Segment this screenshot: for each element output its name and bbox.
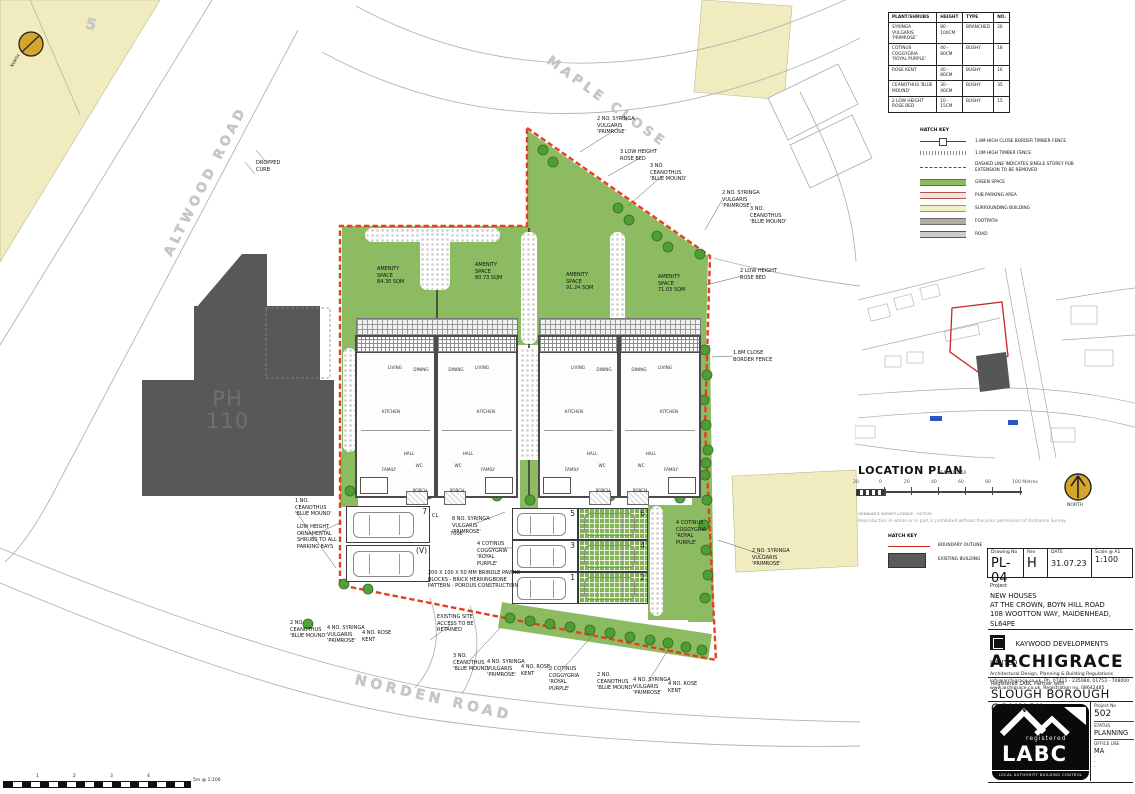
porch bbox=[627, 491, 649, 505]
tree-icon bbox=[585, 625, 595, 635]
office-use-value: MA bbox=[1094, 747, 1134, 755]
plan-annotation: 4 NO. ROSE KENT bbox=[668, 681, 697, 694]
car-icon bbox=[517, 545, 565, 568]
shrub-strip bbox=[650, 506, 663, 616]
plan-annotation: 1.8M CLOSE BORDER FENCE bbox=[733, 350, 772, 363]
scale-tick: 4 bbox=[147, 774, 150, 779]
porch bbox=[444, 491, 466, 505]
plant-col-header: TYPE bbox=[963, 13, 994, 23]
tree-icon bbox=[703, 570, 713, 580]
surrounding-building bbox=[732, 470, 858, 572]
hatch-sample-icon bbox=[920, 151, 966, 155]
plant-schedule-table: PLANT/SHRUBSHEIGHTTYPENO. SYRINGA VULGAR… bbox=[888, 12, 1010, 113]
plan-annotation: 3 NO. CEANOTHUS 'BLUE MOUND' bbox=[750, 206, 787, 226]
parking-bay-number: (V) bbox=[416, 546, 427, 555]
room-label: FAMILY bbox=[664, 467, 678, 472]
room-label: DINING bbox=[413, 367, 428, 372]
car-icon bbox=[353, 512, 414, 539]
tree-icon bbox=[702, 495, 712, 505]
tree-icon bbox=[645, 635, 655, 645]
room-label: HALL bbox=[463, 451, 474, 456]
hatch-key-label: 1.8M HIGH CLOSE BORDER TIMBER FENCE bbox=[975, 139, 1066, 145]
room-label: FAMILY bbox=[565, 467, 579, 472]
archigrace-logo-icon bbox=[990, 635, 1005, 650]
date: 31.07.23 bbox=[1051, 559, 1088, 568]
tree-icon bbox=[703, 445, 713, 455]
car-icon bbox=[353, 551, 414, 578]
house-unit: LIVINGDININGKITCHENHALLWCFAMILYPORCH bbox=[538, 335, 620, 498]
plan-annotation: 4 NO. SYRINGA VULGARIS 'PRIMROSE' bbox=[633, 677, 671, 697]
tree-icon bbox=[538, 145, 548, 155]
hatch-key-item: SURROUNDING BUILDING bbox=[920, 205, 1135, 212]
car-icon bbox=[517, 513, 565, 536]
tree-icon bbox=[701, 458, 711, 468]
room-label: DINING bbox=[596, 367, 611, 372]
plan-annotation: 2 NO. CEANOTHUS 'BLUE MOUND' bbox=[597, 672, 634, 692]
tree-icon bbox=[605, 628, 615, 638]
map-existing-building bbox=[976, 352, 1010, 392]
ordnance-note: Reproduction in whole or in part is proh… bbox=[858, 519, 1067, 524]
plan-annotation: 2 NO. SYRINGA VULGARIS 'PRIMROSE' bbox=[752, 548, 790, 568]
plan-annotation: AMENITY SPACE 80.73 SQM bbox=[475, 262, 502, 282]
internal-wall bbox=[544, 430, 613, 431]
scale-tick: 3 bbox=[110, 774, 113, 779]
plan-annotation: 4 NO. SYRINGA VULGARIS 'PRIMROSE' bbox=[327, 625, 365, 645]
plan-annotation: 3 LOW HEIGHT ROSE BED bbox=[620, 149, 657, 162]
road-badge-icon bbox=[1008, 420, 1018, 425]
parking-bay-number: 7 bbox=[422, 507, 427, 516]
hatch-key-item: ROAD bbox=[920, 231, 1135, 238]
room-label: DINING bbox=[631, 367, 646, 372]
hatch-key-label: FOOTPATH bbox=[975, 219, 998, 225]
parking-bay: 7 bbox=[346, 506, 430, 543]
tree-icon bbox=[701, 420, 711, 430]
dash: - bbox=[1094, 765, 1134, 770]
existing-building-sample bbox=[888, 553, 926, 568]
tree-icon bbox=[505, 613, 515, 623]
hatch-key-item: FOOTPATH bbox=[920, 218, 1135, 225]
room-label: WC bbox=[454, 463, 461, 468]
parking-bay: 1 bbox=[512, 572, 578, 604]
tree-icon bbox=[565, 622, 575, 632]
parking-bay-number: 3 bbox=[570, 541, 575, 550]
drawing-no-label: Drawing No bbox=[991, 550, 1020, 555]
roof-hatch bbox=[540, 337, 617, 353]
plan-annotation: AMENITY SPACE 71.03 SQM bbox=[658, 274, 685, 294]
rev-label: Rev bbox=[1027, 550, 1044, 555]
plan-annotation: 3 NO. CEANOTHUS 'BLUE MOUND' bbox=[453, 653, 490, 673]
room-label: LIVING bbox=[571, 365, 585, 370]
plan-annotation: 3 NO. CEANOTHUS 'BLUE MOUND' bbox=[650, 163, 687, 183]
room-label: PORCH bbox=[450, 488, 465, 493]
room-label: KITCHEN bbox=[565, 409, 583, 414]
plan-annotation: 2 NO. SYRINGA VULGARIS 'PRIMROSE' bbox=[597, 116, 635, 136]
hatch-sample-icon bbox=[920, 141, 966, 142]
house-unit: LIVINGDININGKITCHENHALLWCFAMILYPORCH bbox=[355, 335, 437, 498]
parking-bay: 2 bbox=[578, 572, 648, 604]
road-badge-icon bbox=[930, 416, 942, 421]
internal-wall bbox=[361, 430, 430, 431]
hatch-key-label: ROAD bbox=[975, 232, 988, 238]
tree-icon bbox=[363, 584, 373, 594]
hatch-key-item: 1.8M HIGH CLOSE BORDER TIMBER FENCE bbox=[920, 139, 1135, 145]
location-scale-tick: 60 bbox=[958, 480, 964, 485]
hatch-key-label: SURROUNDING BUILDING bbox=[975, 206, 1030, 212]
plant-row: COTINUS COGGYGRIA 'ROYAL PURPLE'40 - 80C… bbox=[889, 44, 1010, 65]
tree-icon bbox=[663, 242, 673, 252]
bay-window bbox=[668, 477, 696, 494]
parking-bay: 3 bbox=[512, 540, 578, 572]
tree-icon bbox=[548, 157, 558, 167]
surrounding-building bbox=[694, 0, 792, 100]
plan-annotation: 1 NO. CEANOTHUS 'BLUE MOUND' bbox=[295, 498, 332, 518]
plan-annotation: CL bbox=[432, 513, 438, 520]
scale: 1:100 bbox=[1095, 555, 1129, 564]
plant-header-row: PLANT/SHRUBSHEIGHTTYPENO. bbox=[889, 13, 1010, 23]
hatch-sample-icon bbox=[920, 205, 966, 212]
hatch-key-label: DASHED LINE INDICATES SINGLE STOREY PUB … bbox=[975, 162, 1095, 173]
room-label: HALL bbox=[646, 451, 657, 456]
scale-tick: 1 bbox=[36, 774, 39, 779]
parking-bay-number: 2 bbox=[640, 573, 645, 582]
hatch-key-label: GREEN SPACE bbox=[975, 180, 1005, 186]
labc-tagline: LOCAL AUTHORITY BUILDING CONTROL bbox=[992, 770, 1089, 777]
parking-bay: 5 bbox=[512, 508, 578, 540]
north-label: NORTH bbox=[1067, 503, 1083, 508]
boundary-outline-sample bbox=[888, 546, 930, 547]
hatch-key-label: PUB PARKING AREA bbox=[975, 193, 1017, 199]
tree-icon bbox=[652, 231, 662, 241]
room-label: WC bbox=[637, 463, 644, 468]
plan-annotation: 4 NO. SYRINGA VULGARIS 'PRIMROSE' bbox=[487, 659, 525, 679]
porch bbox=[406, 491, 428, 505]
room-label: HALL bbox=[404, 451, 415, 456]
location-scale-tick: 0 bbox=[879, 480, 882, 485]
location-plan-scale: SCALE 1:1250 bbox=[938, 470, 966, 475]
tree-icon bbox=[545, 619, 555, 629]
roof-hatch bbox=[621, 337, 699, 353]
room-label: HALL bbox=[587, 451, 598, 456]
drawing-no: PL-04 bbox=[991, 556, 1020, 586]
plan-annotation: 4 COTINUS COGGYGRIA 'ROYAL PURPLE' bbox=[676, 520, 706, 546]
plan-scale-caption: 5m @ 1:100 bbox=[193, 778, 221, 783]
project-line: 108 WOOTTON WAY, MAIDENHEAD, SL64PE bbox=[990, 610, 1135, 628]
tree-icon bbox=[525, 495, 535, 505]
plan-annotation: 2 NO. CEANOTHUS 'BLUE MOUND' bbox=[290, 620, 327, 640]
hatch-sample-icon bbox=[920, 167, 966, 168]
room-label: LIVING bbox=[388, 365, 402, 370]
parking-bay: 6 bbox=[578, 508, 648, 540]
room-label: WC bbox=[598, 463, 605, 468]
room-label: LIVING bbox=[475, 365, 489, 370]
internal-wall bbox=[625, 430, 695, 431]
firm-name: ARCHIGRACE bbox=[990, 652, 1124, 672]
plan-annotation: AMENITY SPACE 91.24 SQM bbox=[566, 272, 593, 292]
room-label: DINING bbox=[448, 367, 463, 372]
shrub-strip bbox=[520, 348, 538, 460]
plan-annotation: EXISTING SITE ACCESS TO BE RETAINED bbox=[437, 614, 474, 634]
patio-hatch bbox=[356, 318, 518, 336]
status-value: PLANNING bbox=[1094, 729, 1134, 737]
tree-icon bbox=[345, 486, 355, 496]
room-label: FAMILY bbox=[382, 467, 396, 472]
patio-hatch bbox=[539, 318, 701, 336]
labc-logo: registered LABC LOCAL AUTHORITY BUILDING… bbox=[992, 704, 1089, 780]
plan-annotation: 2 COTINUS COGGYGRIA 'ROYAL PURPLE' bbox=[549, 666, 579, 692]
hatch-sample-icon bbox=[920, 192, 966, 199]
plan-annotation: 7000 bbox=[450, 531, 463, 538]
tree-icon bbox=[697, 645, 707, 655]
tree-icon bbox=[525, 616, 535, 626]
location-scale-tick: 40 bbox=[931, 480, 937, 485]
plant-row: SYRINGA VULGARIS 'PRIMROSE'80 - 100CMBRA… bbox=[889, 23, 1010, 44]
location-scale-tick: 100 Metres bbox=[1012, 480, 1038, 485]
internal-wall bbox=[442, 430, 512, 431]
existing-building-label: EXISTING BUILDING bbox=[938, 557, 980, 562]
project-line: AT THE CROWN, BOYN HILL ROAD bbox=[990, 601, 1135, 610]
date-label: DATE bbox=[1051, 550, 1088, 555]
location-scale-bar bbox=[856, 489, 886, 496]
car-icon bbox=[584, 577, 635, 600]
plan-annotation: AMENITY SPACE 84.30 SQM bbox=[377, 266, 404, 286]
drawing-info-table: Drawing No PL-04 Rev H DATE 31.07.23 Sca… bbox=[987, 548, 1133, 578]
project-line: NEW HOUSES bbox=[990, 592, 1135, 601]
tree-icon bbox=[700, 593, 710, 603]
shrub-strip bbox=[420, 232, 450, 290]
plan-annotation: 4 COTINUS COGGYGRIA 'ROYAL PURPLE' bbox=[477, 541, 507, 567]
pub-building bbox=[142, 254, 334, 496]
tree-icon bbox=[701, 545, 711, 555]
pub-label: PH 110 bbox=[206, 388, 249, 432]
boundary-outline-label: BOUNDARY OUTLINE bbox=[938, 543, 982, 548]
office-use-block: Project No 502 STATUS PLANNING OFFICE US… bbox=[1094, 704, 1134, 770]
plant-row: ROSE KENT40 - 80CMBUSHY16 bbox=[889, 65, 1010, 81]
parking-bay-number: 1 bbox=[570, 573, 575, 582]
roof-hatch bbox=[357, 337, 434, 353]
tree-icon bbox=[613, 203, 623, 213]
parking-bay-number: 6 bbox=[640, 509, 645, 518]
parking-bay-number: 5 bbox=[570, 509, 575, 518]
room-label: KITCHEN bbox=[660, 409, 678, 414]
tree-icon bbox=[700, 470, 710, 480]
plan-annotation: 200 X 100 X 50 MM BRINDLE PAVING BLOCKS … bbox=[428, 570, 520, 590]
hatch-key-item: PUB PARKING AREA bbox=[920, 192, 1135, 199]
tree-icon bbox=[625, 632, 635, 642]
tree-icon bbox=[700, 345, 710, 355]
room-label: KITCHEN bbox=[477, 409, 495, 414]
project-label: Project bbox=[990, 583, 1135, 589]
room-label: PORCH bbox=[413, 488, 428, 493]
plant-col-header: PLANT/SHRUBS bbox=[889, 13, 937, 23]
hatch-sample-icon bbox=[920, 218, 966, 225]
room-label: WC bbox=[415, 463, 422, 468]
plan-annotation: 4 NO. ROSE KENT bbox=[521, 664, 550, 677]
tree-icon bbox=[663, 638, 673, 648]
hatch-sample-icon bbox=[920, 179, 966, 186]
hatch-key-2-title: HATCH KEY bbox=[888, 534, 917, 539]
scale-tick: 2 bbox=[73, 774, 76, 779]
house-unit: LIVINGDININGKITCHENHALLWCFAMILYPORCH bbox=[436, 335, 518, 498]
hatch-key-label: 1.0M HIGH TIMBER FENCE bbox=[975, 151, 1031, 157]
hatch-key-item: 1.0M HIGH TIMBER FENCE bbox=[920, 151, 1135, 157]
plan-scale-bar bbox=[3, 781, 191, 788]
location-plan-map bbox=[855, 268, 1135, 464]
room-label: FAMILY bbox=[481, 467, 495, 472]
room-label: PORCH bbox=[596, 488, 611, 493]
house-unit: LIVINGDININGKITCHENHALLWCFAMILYPORCH bbox=[619, 335, 701, 498]
plan-annotation: DROPPED CURB bbox=[256, 160, 280, 173]
hatch-key-item: GREEN SPACE bbox=[920, 179, 1135, 186]
tree-icon bbox=[624, 215, 634, 225]
plant-col-header: HEIGHT bbox=[937, 13, 963, 23]
labc-registered-label: registered bbox=[1026, 735, 1067, 742]
shrub-strip bbox=[521, 232, 537, 344]
room-label: LIVING bbox=[658, 365, 672, 370]
hatch-key-title: HATCH KEY bbox=[920, 128, 1135, 133]
tree-icon bbox=[702, 370, 712, 380]
car-icon bbox=[517, 577, 565, 600]
plant-row: CEANOTHUS 'BLUE MOUND'30 - 40CMBUSHY35 bbox=[889, 81, 1010, 97]
bay-window bbox=[543, 477, 571, 494]
hatch-key-item: DASHED LINE INDICATES SINGLE STOREY PUB … bbox=[920, 162, 1135, 173]
project-no: 502 bbox=[1094, 709, 1134, 719]
parking-bay: 4 bbox=[578, 540, 648, 572]
porch bbox=[589, 491, 611, 505]
roof-hatch bbox=[438, 337, 516, 353]
car-icon bbox=[584, 545, 635, 568]
rev: H bbox=[1027, 556, 1044, 571]
plan-annotation: 2 LOW HEIGHT ROSE BED bbox=[740, 268, 777, 281]
labc-name: LABC bbox=[1002, 742, 1067, 766]
plant-col-header: NO. bbox=[994, 13, 1010, 23]
plan-annotation: LOW HEIGHT ORNAMENTAL SHRUBS TO ALL PARK… bbox=[297, 524, 337, 550]
location-scale-tick: 20 bbox=[904, 480, 910, 485]
parking-bay-number: 4 bbox=[640, 541, 645, 550]
tree-icon bbox=[695, 249, 705, 259]
car-icon bbox=[584, 513, 635, 536]
north-arrow-icon bbox=[19, 32, 43, 56]
site-plan-sheet: LIVINGDININGKITCHENHALLWCFAMILYPORCHLIVI… bbox=[0, 0, 1135, 794]
tree-icon bbox=[681, 642, 691, 652]
bay-window bbox=[485, 477, 513, 494]
room-label: KITCHEN bbox=[382, 409, 400, 414]
hatch-key: HATCH KEY 1.8M HIGH CLOSE BORDER TIMBER … bbox=[920, 128, 1135, 238]
location-scale-tick: 20 bbox=[853, 480, 859, 485]
location-scale-tick: 80 bbox=[985, 480, 991, 485]
room-label: PORCH bbox=[633, 488, 648, 493]
plant-row: 2 LOW HEIGHT ROSE BED10 - 15CMBUSHY15 bbox=[889, 96, 1010, 112]
hatch-sample-icon bbox=[920, 231, 966, 238]
plan-annotation: 4 NO. ROSE KENT bbox=[362, 630, 391, 643]
parking-bay: (V) bbox=[346, 545, 430, 582]
bay-window bbox=[360, 477, 388, 494]
ordnance-licence: ORDNANCE SURVEY LICENCE - 027570 bbox=[858, 511, 932, 516]
